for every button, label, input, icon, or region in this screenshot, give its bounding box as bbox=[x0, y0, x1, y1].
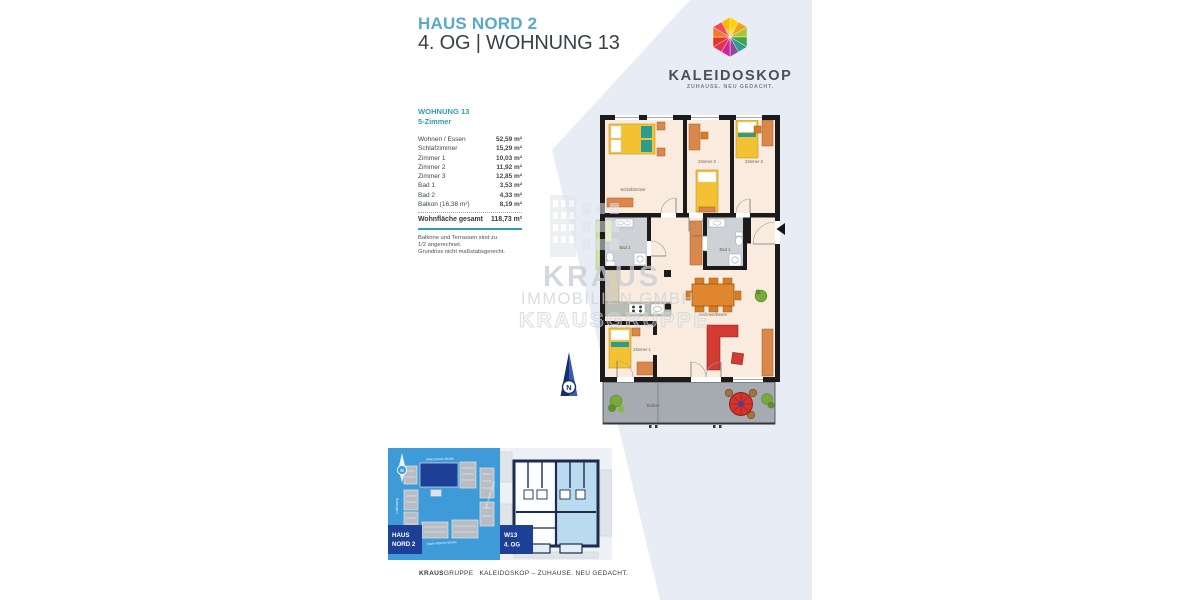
room-label: Zimmer 1 bbox=[418, 154, 445, 163]
total-area-row: Wohnfläche gesamt 118,73 m² bbox=[418, 214, 522, 225]
table-row: Zimmer 312,85 m² bbox=[418, 172, 522, 181]
brand-tagline: ZUHAUSE. NEU GEDACHT. bbox=[668, 84, 793, 90]
room-area: 4,33 m² bbox=[500, 191, 522, 200]
badge-line1: HAUS bbox=[392, 532, 410, 539]
table-row: Bad 13,53 m² bbox=[418, 181, 522, 190]
unit-title: 4. OG | WOHNUNG 13 bbox=[418, 32, 620, 55]
street-left: Lindenweg bbox=[395, 498, 399, 514]
label-balkon: Balkon bbox=[647, 403, 660, 408]
footnote-line: Grundriss nicht maßstabsgerecht. bbox=[418, 249, 538, 256]
footnote: Balkone und Terrassen sind zu 1/2 angere… bbox=[418, 235, 538, 257]
badge-line2: NORD 2 bbox=[392, 541, 416, 548]
document-page: HAUS NORD 2 4. OG | WOHNUNG 13 KALEIDOSK… bbox=[0, 0, 1200, 600]
table-row: Zimmer 110,03 m² bbox=[418, 154, 522, 163]
floorplan-image: Schlafzimmer Zimmer 2 Zimmer 3 Bad 2 Bad… bbox=[595, 110, 787, 432]
room-area: 3,53 m² bbox=[500, 181, 522, 190]
kaleidoskop-hexagon-logo-icon bbox=[713, 17, 747, 57]
total-area: 118,73 m² bbox=[491, 214, 522, 225]
label-wohnen-essen: Wohnen/Essen bbox=[699, 312, 728, 317]
expose-sheet: HAUS NORD 2 4. OG | WOHNUNG 13 KALEIDOSK… bbox=[388, 0, 812, 600]
compass-n-label: N bbox=[566, 383, 571, 392]
total-label: Wohnfläche gesamt bbox=[418, 214, 483, 225]
footer-line: KRAUSGRUPPEKALEIDOSKOP – ZUHAUSE. NEU GE… bbox=[419, 570, 628, 577]
room-label: Bad 1 bbox=[418, 181, 435, 190]
table-row: Bad 24,33 m² bbox=[418, 191, 522, 200]
room-area: 11,92 m² bbox=[496, 163, 522, 172]
unit-type: 5-Zimmer bbox=[418, 117, 451, 126]
footer-brand-rest: GRUPPE bbox=[444, 570, 474, 577]
label-schlafzimmer: Schlafzimmer bbox=[620, 187, 646, 192]
room-label: Wohnen / Essen bbox=[418, 135, 466, 144]
footer-brand-bold: KRAUS bbox=[419, 570, 444, 577]
armchair bbox=[731, 352, 743, 364]
room-area: 52,59 m² bbox=[496, 135, 522, 144]
label-zimmer3: Zimmer 3 bbox=[745, 159, 763, 164]
room-label: Zimmer 3 bbox=[418, 172, 445, 181]
hall-wardrobe bbox=[690, 221, 702, 265]
badge-line1: W13 bbox=[504, 532, 518, 539]
table-row: Balkon (16,38 m²)8,19 m² bbox=[418, 200, 522, 209]
table-row: Zimmer 211,92 m² bbox=[418, 163, 522, 172]
footnote-line: Balkone und Terrassen sind zu bbox=[418, 235, 538, 242]
room-area: 8,19 m² bbox=[500, 200, 522, 209]
footnote-line: 1/2 angerechnet. bbox=[418, 242, 538, 249]
label-bad1: Bad 1 bbox=[720, 247, 732, 252]
room-area: 15,29 m² bbox=[496, 144, 522, 153]
floor-overview-image: W13 4. OG bbox=[500, 448, 612, 560]
room-area: 10,03 m² bbox=[496, 154, 522, 163]
label-zimmer2: Zimmer 2 bbox=[698, 159, 716, 164]
label-zimmer1: Zimmer 1 bbox=[633, 347, 651, 352]
watermark-building-icon bbox=[550, 195, 622, 257]
room-label: Zimmer 2 bbox=[418, 163, 445, 172]
project-title: HAUS NORD 2 bbox=[418, 14, 537, 34]
table-row: Schlafzimmer15,29 m² bbox=[418, 144, 522, 153]
north-compass-icon: N bbox=[558, 352, 580, 400]
room-area: 12,85 m² bbox=[496, 172, 522, 181]
divider bbox=[418, 228, 522, 230]
siteplan-badge: HAUS NORD 2 bbox=[388, 525, 422, 554]
balcony bbox=[603, 382, 775, 428]
unit-name: WOHNUNG 13 bbox=[418, 107, 469, 116]
apartment-highlight bbox=[556, 463, 597, 545]
badge-line2: 4. OG bbox=[504, 543, 520, 549]
siteplan-image: Hilde-Domin-Straße Marie-Marcks-Straße M… bbox=[388, 448, 500, 560]
brand-name: KALEIDOSKOP bbox=[668, 68, 793, 84]
room-label: Bad 2 bbox=[418, 191, 435, 200]
room-label: Balkon (16,38 m²) bbox=[418, 200, 470, 209]
footer-tagline: KALEIDOSKOP – ZUHAUSE. NEU GEDACHT. bbox=[479, 570, 628, 577]
highlighted-building bbox=[420, 463, 458, 487]
sideboard bbox=[762, 329, 773, 376]
table-row: Wohnen / Essen52,59 m² bbox=[418, 135, 522, 144]
overview-badge: W13 4. OG bbox=[500, 525, 533, 554]
room-label: Schlafzimmer bbox=[418, 144, 457, 153]
divider bbox=[418, 212, 522, 213]
room-area-table: Wohnen / Essen52,59 m² Schlafzimmer15,29… bbox=[418, 135, 522, 209]
plant-icon bbox=[755, 290, 767, 303]
